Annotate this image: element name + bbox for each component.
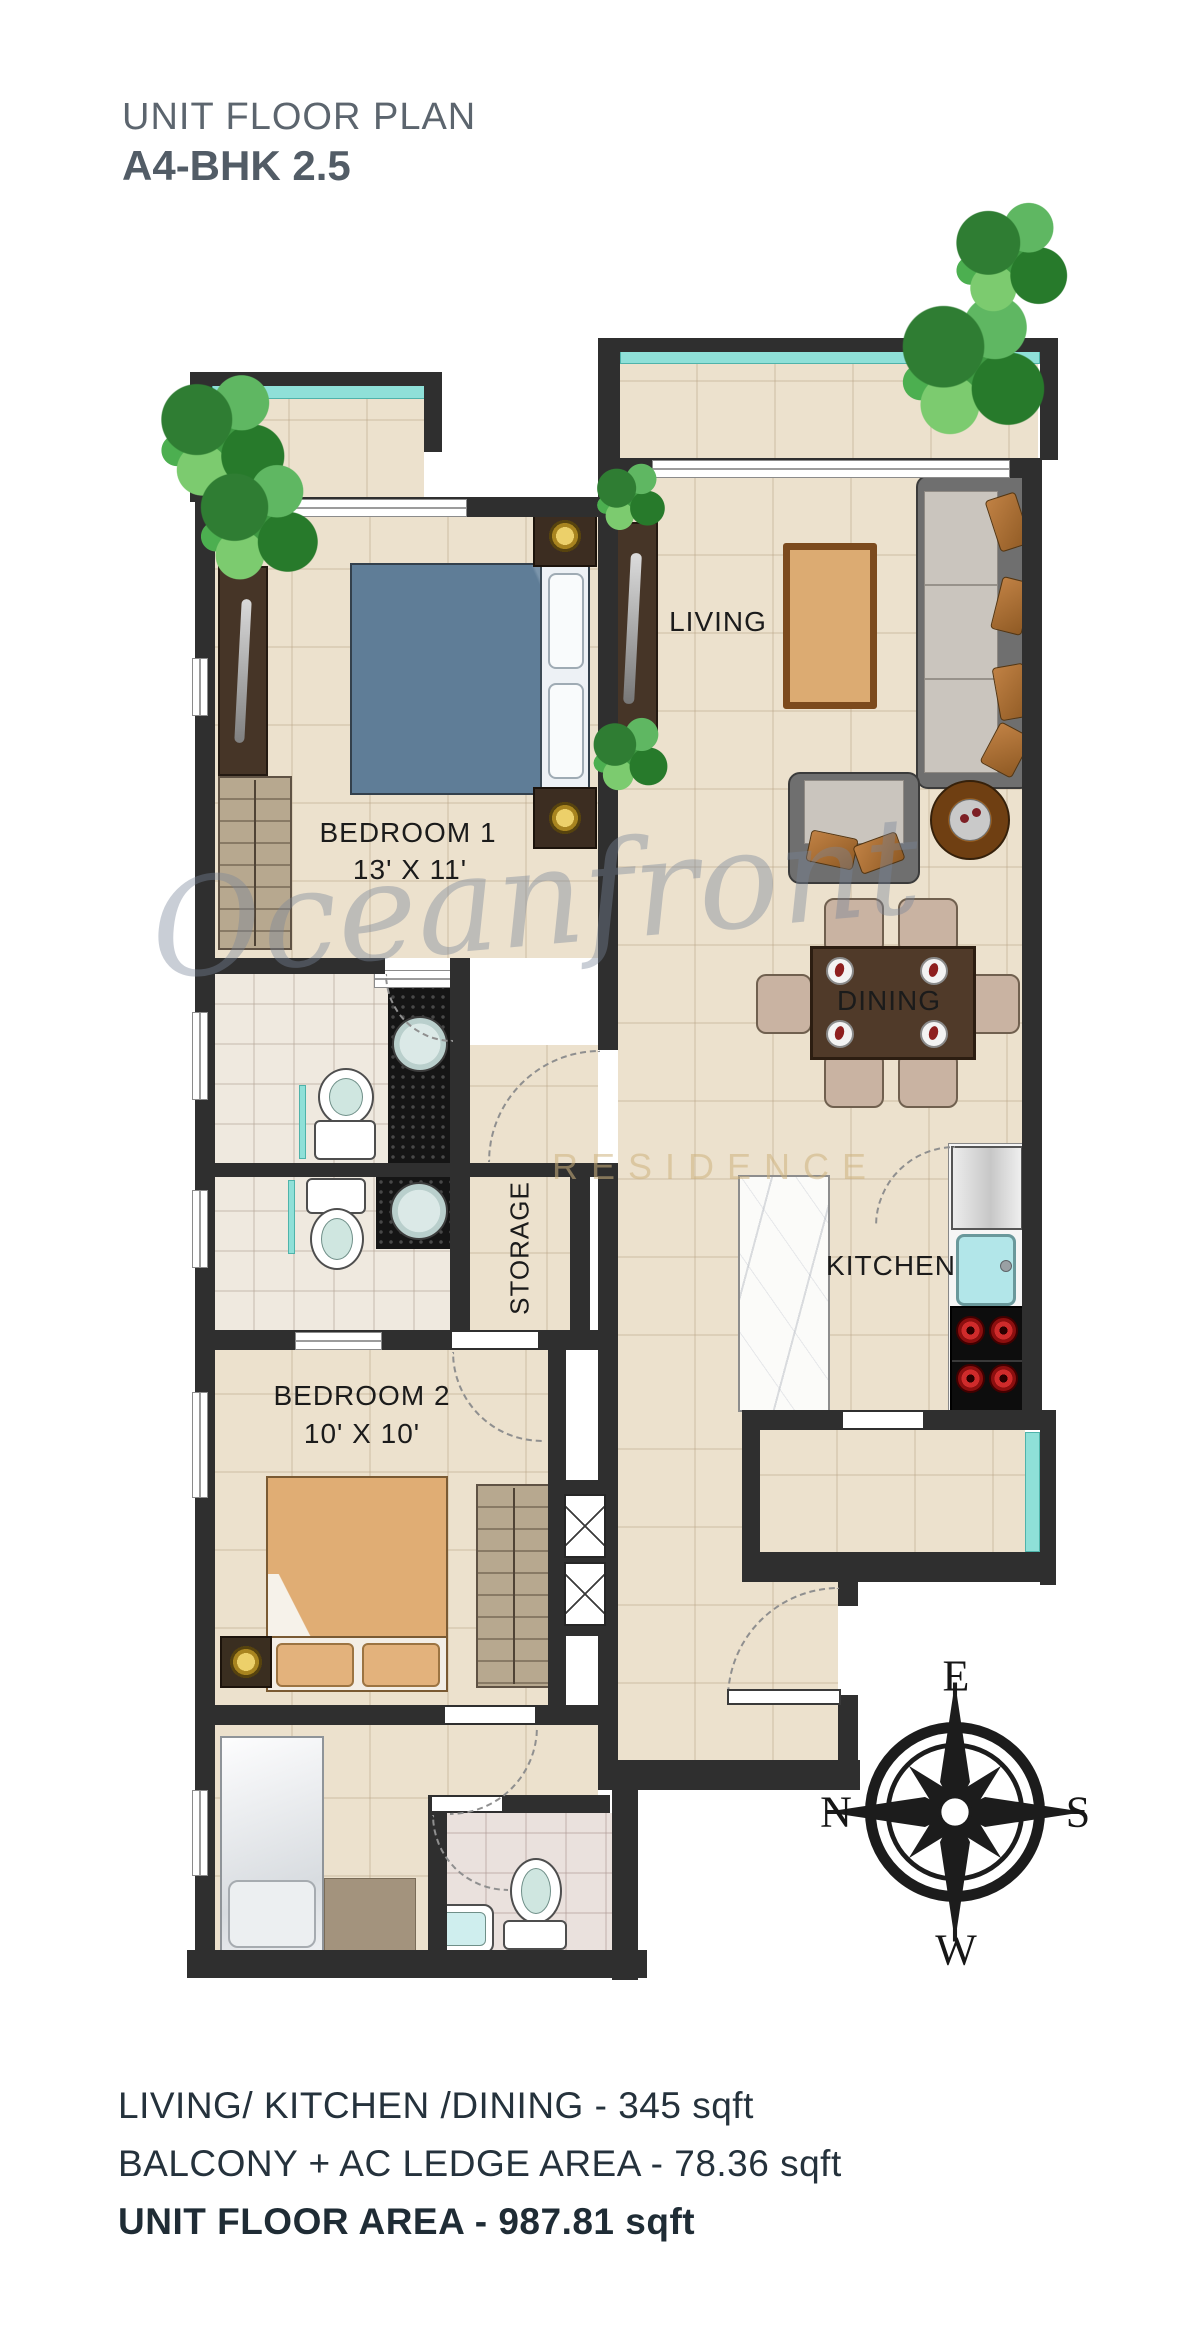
service-shaft [564, 1562, 606, 1626]
bedroom1-side-window [192, 658, 208, 716]
bath2-window [192, 1190, 208, 1268]
wall-segment [195, 1163, 598, 1177]
bedroom2-window [192, 1392, 208, 1498]
bath1-toilet-bowl [318, 1068, 374, 1126]
page-title: UNIT FLOOR PLAN [122, 96, 476, 139]
place-setting-icon [920, 1020, 948, 1048]
wall-segment [450, 958, 470, 1330]
living-window [652, 460, 1010, 478]
bedroom1-bed [350, 563, 590, 795]
wall-segment [598, 338, 620, 460]
utility-mat [324, 1878, 416, 1952]
utility-toilet-bowl [510, 1858, 562, 1924]
wall-segment [195, 1330, 618, 1350]
room-label-living: LIVING [669, 606, 767, 638]
utility-window [192, 1790, 208, 1876]
wall-segment [570, 1163, 590, 1330]
place-setting-icon [826, 957, 854, 985]
wall-segment [1022, 458, 1042, 1413]
room-dims-bedroom2: 10' X 10' [304, 1418, 420, 1450]
utility-bed [220, 1736, 324, 1956]
dining-chair [898, 1052, 958, 1108]
bedroom2-hatch-window [295, 1332, 382, 1350]
place-setting-icon [920, 957, 948, 985]
utility-toilet-tank [503, 1920, 567, 1950]
room-label-bedroom1: BEDROOM 1 [319, 817, 496, 849]
lamp-icon [548, 519, 582, 553]
lamp-icon [548, 801, 582, 835]
bed-mattress [268, 1636, 446, 1690]
room-label-dining: DINING [837, 985, 941, 1017]
burner-icon [989, 1316, 1018, 1345]
wall-segment [742, 1410, 760, 1565]
bed-fold [268, 1574, 324, 1640]
bedroom2-bed [266, 1476, 448, 1692]
dresser-handle [234, 599, 252, 744]
wall-segment [838, 1582, 858, 1606]
bed-mattress [540, 565, 588, 793]
plant-icon [948, 200, 1074, 326]
kitchen-balcony-glass-rail [1025, 1432, 1040, 1552]
coffee-table [783, 543, 877, 709]
unit-type-subtitle: A4-BHK 2.5 [122, 142, 351, 190]
burner-icon [989, 1364, 1018, 1393]
bed-pillow [276, 1643, 354, 1687]
burner-icon [956, 1316, 985, 1345]
door-opening [452, 1332, 538, 1348]
side-table-tray [949, 799, 991, 841]
door-opening [843, 1412, 923, 1428]
bath2-basin [390, 1182, 448, 1240]
lamp-icon [229, 1645, 263, 1679]
armchair [788, 772, 920, 884]
bath2-toilet-bowl [310, 1208, 364, 1270]
wall-segment [195, 958, 385, 974]
side-table [930, 780, 1010, 860]
faucet-icon [1000, 1260, 1012, 1272]
wall-segment [742, 1552, 1054, 1582]
compass-north-label: N [820, 1787, 852, 1838]
area-line-living-kitchen-dining: LIVING/ KITCHEN /DINING - 345 sqft [118, 2085, 754, 2127]
wall-segment [187, 1950, 647, 1978]
bedroom1-wardrobe [218, 776, 292, 950]
sofa-seat [924, 491, 998, 773]
bath1-window [192, 1012, 208, 1100]
bath1-shower-glass [299, 1085, 306, 1159]
plant-icon [192, 462, 325, 595]
door-opening [445, 1707, 535, 1723]
dining-chair [756, 974, 812, 1034]
plant-icon [588, 716, 672, 800]
compass-west-label: W [935, 1925, 977, 1976]
room-label-bedroom2: BEDROOM 2 [273, 1380, 450, 1412]
area-line-balcony-ac-ledge: BALCONY + AC LEDGE AREA - 78.36 sqft [118, 2143, 842, 2185]
wall-segment [424, 372, 442, 452]
compass-east-label: E [943, 1651, 970, 1702]
dining-chair [824, 1052, 884, 1108]
burner-icon [956, 1364, 985, 1393]
room-label-storage: STORAGE [505, 1181, 536, 1315]
fridge [951, 1146, 1023, 1230]
kitchen-balcony-floor [760, 1430, 1025, 1552]
bed-pillow [362, 1643, 440, 1687]
bed-pillow [548, 573, 584, 669]
bedroom2-lamp-table [220, 1636, 272, 1688]
bedroom1-dresser [218, 566, 268, 776]
place-setting-icon [826, 1020, 854, 1048]
bed-pillow [548, 683, 584, 779]
room-dims-bedroom1: 13' X 11' [353, 854, 467, 886]
area-line-unit-floor-area: UNIT FLOOR AREA - 987.81 sqft [118, 2201, 695, 2243]
wall-segment [195, 1705, 618, 1725]
wall-segment [598, 1163, 618, 1790]
bedroom2-wardrobe [476, 1484, 552, 1688]
bed-pillow [228, 1880, 316, 1948]
room-label-kitchen: KITCHEN [826, 1250, 956, 1282]
kitchen-island [738, 1175, 830, 1412]
plant-icon [592, 462, 669, 539]
bath1-toilet-tank [314, 1120, 376, 1160]
compass-south-label: S [1066, 1787, 1090, 1838]
bath2-shower-glass [288, 1180, 295, 1254]
sofa [916, 475, 1032, 789]
tv-icon [623, 553, 642, 705]
service-shaft [564, 1494, 606, 1558]
shaft-frame [558, 1480, 608, 1494]
floor-plan-page: UNIT FLOOR PLAN A4-BHK 2.5 [0, 0, 1200, 2329]
